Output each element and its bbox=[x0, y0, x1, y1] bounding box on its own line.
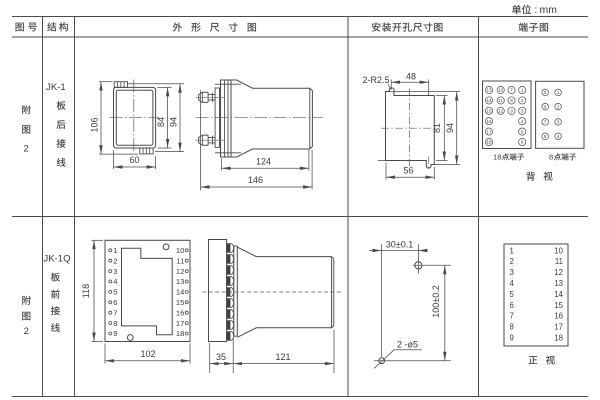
svg-text:56: 56 bbox=[403, 166, 413, 176]
svg-text:118: 118 bbox=[81, 284, 91, 298]
svg-text:4: 4 bbox=[113, 277, 117, 286]
svg-text:2: 2 bbox=[24, 144, 29, 155]
svg-text:14: 14 bbox=[176, 288, 184, 297]
svg-text:2: 2 bbox=[521, 98, 524, 103]
svg-text:2: 2 bbox=[113, 256, 117, 265]
svg-text:8: 8 bbox=[510, 323, 514, 332]
svg-text:12: 12 bbox=[176, 267, 184, 276]
svg-text:11: 11 bbox=[176, 256, 184, 265]
svg-text:3: 3 bbox=[510, 268, 514, 277]
svg-text:94: 94 bbox=[169, 117, 179, 127]
svg-text:60: 60 bbox=[129, 155, 139, 165]
svg-text:2: 2 bbox=[24, 326, 29, 337]
svg-text:11: 11 bbox=[555, 257, 563, 266]
svg-text:35: 35 bbox=[216, 352, 226, 362]
svg-text:10: 10 bbox=[176, 246, 184, 255]
svg-text:13: 13 bbox=[486, 88, 492, 93]
svg-text:17: 17 bbox=[486, 129, 492, 134]
svg-text:1: 1 bbox=[521, 88, 524, 93]
svg-text:3: 3 bbox=[521, 109, 524, 114]
svg-text:121: 121 bbox=[275, 352, 290, 362]
svg-text:15: 15 bbox=[486, 109, 492, 114]
svg-text:4: 4 bbox=[557, 134, 560, 139]
svg-text:16: 16 bbox=[554, 312, 563, 321]
svg-text:18: 18 bbox=[493, 153, 501, 162]
svg-text:1: 1 bbox=[557, 90, 560, 95]
svg-text:6: 6 bbox=[510, 301, 514, 310]
svg-text:5: 5 bbox=[544, 90, 547, 95]
svg-text:2-R2.5: 2-R2.5 bbox=[363, 75, 390, 85]
svg-text:11: 11 bbox=[498, 98, 503, 103]
svg-text::: : bbox=[535, 5, 538, 16]
svg-text:8: 8 bbox=[113, 319, 117, 328]
svg-text:7: 7 bbox=[113, 308, 117, 317]
svg-text:48: 48 bbox=[406, 71, 416, 81]
svg-text:2: 2 bbox=[510, 257, 514, 266]
svg-text:4: 4 bbox=[510, 279, 515, 288]
svg-text:8: 8 bbox=[544, 134, 547, 139]
svg-text:9: 9 bbox=[113, 329, 117, 338]
svg-text:102: 102 bbox=[140, 349, 155, 359]
svg-text:81: 81 bbox=[432, 123, 442, 133]
svg-text:30±0.1: 30±0.1 bbox=[386, 239, 413, 249]
svg-text:4: 4 bbox=[521, 119, 524, 124]
svg-text:10: 10 bbox=[554, 246, 563, 255]
svg-text:15: 15 bbox=[176, 298, 184, 307]
svg-text:16: 16 bbox=[486, 119, 492, 124]
svg-text:17: 17 bbox=[554, 323, 563, 332]
svg-text:8: 8 bbox=[549, 153, 553, 162]
svg-text:84: 84 bbox=[156, 117, 166, 127]
svg-text:2 -ø5: 2 -ø5 bbox=[397, 339, 418, 349]
svg-text:5: 5 bbox=[521, 129, 524, 134]
svg-text:1: 1 bbox=[113, 246, 117, 255]
svg-text:14: 14 bbox=[554, 290, 563, 299]
svg-text:18: 18 bbox=[554, 334, 563, 343]
svg-text:16: 16 bbox=[176, 308, 184, 317]
svg-text:106: 106 bbox=[90, 117, 100, 132]
svg-text:12: 12 bbox=[498, 109, 504, 114]
svg-text:6: 6 bbox=[113, 298, 117, 307]
svg-text:7: 7 bbox=[544, 120, 547, 125]
svg-text:18: 18 bbox=[176, 329, 184, 338]
svg-text:3: 3 bbox=[113, 267, 117, 276]
svg-text:94: 94 bbox=[445, 123, 455, 133]
svg-text:8: 8 bbox=[510, 98, 513, 103]
svg-text:2: 2 bbox=[557, 104, 560, 109]
svg-text:5: 5 bbox=[113, 288, 117, 297]
svg-text:146: 146 bbox=[248, 175, 263, 185]
svg-text:6: 6 bbox=[521, 140, 524, 145]
svg-text:mm: mm bbox=[540, 4, 558, 16]
svg-text:18: 18 bbox=[486, 140, 492, 145]
svg-text:9: 9 bbox=[510, 109, 513, 114]
svg-text:1: 1 bbox=[510, 246, 514, 255]
svg-text:17: 17 bbox=[176, 319, 184, 328]
svg-text:12: 12 bbox=[554, 268, 563, 277]
svg-text:JK-1Q: JK-1Q bbox=[43, 253, 70, 264]
svg-text:7: 7 bbox=[510, 88, 513, 93]
svg-text:124: 124 bbox=[256, 156, 271, 166]
svg-text:15: 15 bbox=[554, 301, 563, 310]
svg-text:JK-1: JK-1 bbox=[46, 82, 66, 93]
svg-text:7: 7 bbox=[510, 312, 514, 321]
svg-text:100±0.2: 100±0.2 bbox=[431, 285, 441, 317]
svg-text:13: 13 bbox=[554, 279, 563, 288]
svg-text:14: 14 bbox=[486, 98, 492, 103]
svg-text:13: 13 bbox=[176, 277, 184, 286]
svg-text:3: 3 bbox=[557, 120, 560, 125]
svg-text:5: 5 bbox=[510, 290, 515, 299]
svg-text:6: 6 bbox=[544, 104, 547, 109]
svg-text:9: 9 bbox=[510, 334, 514, 343]
svg-text:10: 10 bbox=[498, 88, 504, 93]
